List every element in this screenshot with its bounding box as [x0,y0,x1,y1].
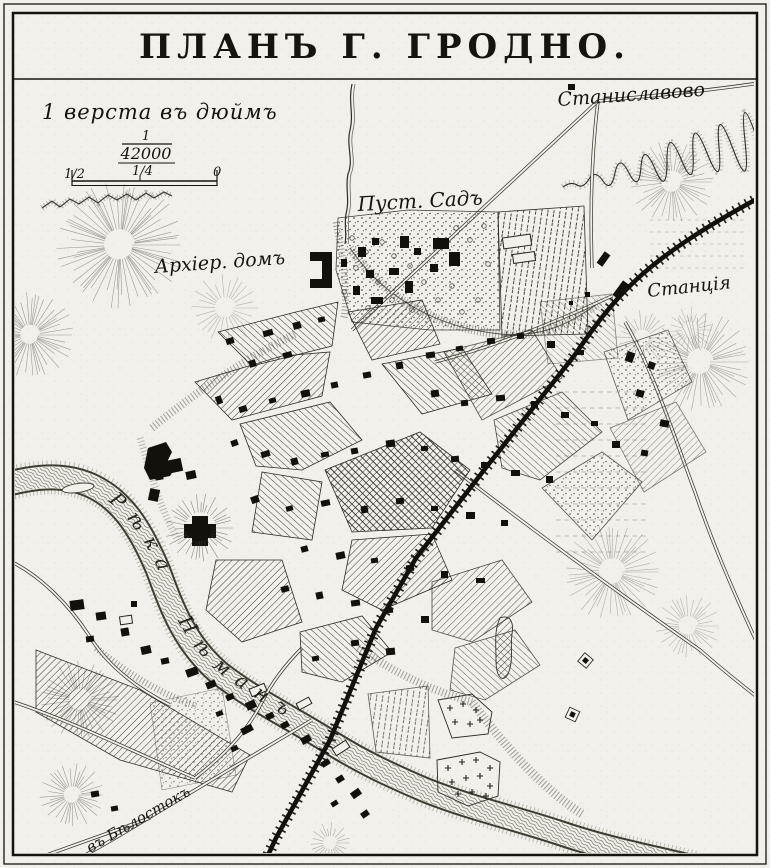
grodno-map: Станиславово Пуст. Садъ Архіер. домъ Ста… [0,0,770,868]
scale-ratio-numerator: 1 [142,129,150,144]
map-page: Станиславово Пуст. Садъ Архіер. домъ Ста… [0,0,770,868]
scale-label-quarter: 1/4 [132,164,153,179]
scale-label-half: 1/2 [64,167,85,182]
scale-caption: 1 верста въ дюймъ [42,100,278,124]
map-title: ПЛАНЪ Г. ГРОДНО. [139,27,631,67]
garden-polygon [336,210,500,330]
scale-ratio-denominator: 42000 [120,144,172,163]
